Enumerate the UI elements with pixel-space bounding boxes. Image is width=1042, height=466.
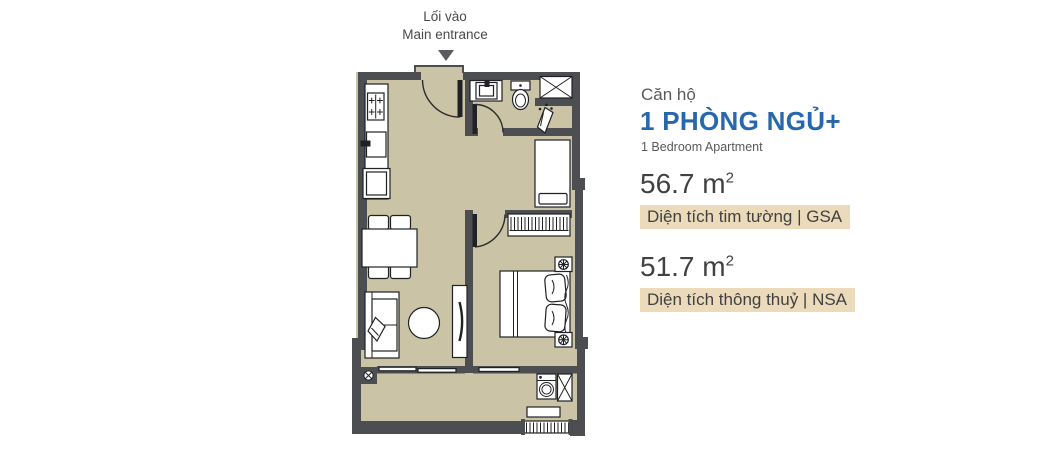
page: Lối vào Main entrance bbox=[0, 0, 1042, 466]
toilet-icon bbox=[511, 81, 530, 110]
refrigerator-icon bbox=[363, 169, 390, 199]
kitchen bbox=[361, 84, 391, 199]
unit-type-subtitle: 1 Bedroom Apartment bbox=[641, 140, 960, 154]
unit-type-label: Căn hộ bbox=[641, 85, 960, 105]
nsa-area-value: 51.7 m2 bbox=[640, 251, 960, 283]
sofa-icon bbox=[365, 292, 399, 358]
gsa-area-value: 56.7 m2 bbox=[640, 168, 960, 200]
bedroom bbox=[500, 214, 572, 347]
entrance-alcove bbox=[415, 66, 463, 73]
balcony-shelf bbox=[527, 407, 560, 417]
nsa-area-label: Diện tích thông thuỷ | NSA bbox=[640, 288, 855, 312]
balcony-railing bbox=[521, 419, 573, 435]
dining-table bbox=[362, 229, 417, 267]
coffee-table-icon bbox=[409, 308, 440, 339]
gsa-area-label: Diện tích tim tường | GSA bbox=[640, 205, 850, 229]
bathroom-sink-icon bbox=[470, 81, 502, 102]
unit-type-title: 1 PHÒNG NGỦ+ bbox=[640, 106, 960, 137]
technical-shaft-icon bbox=[558, 374, 573, 401]
double-bed-icon bbox=[500, 271, 570, 337]
nightstand-icon bbox=[555, 333, 572, 348]
single-bed-icon bbox=[535, 140, 570, 207]
cooktop-icon bbox=[368, 93, 385, 120]
wardrobe-icon bbox=[508, 214, 570, 236]
nightstand-icon bbox=[555, 257, 572, 272]
dining-chair bbox=[391, 216, 411, 230]
entrance-arrow-icon bbox=[438, 50, 454, 61]
dining-chair bbox=[369, 216, 389, 230]
info-panel: Căn hộ 1 PHÒNG NGỦ+ 1 Bedroom Apartment … bbox=[640, 85, 960, 334]
tv-console bbox=[453, 286, 468, 358]
ventilation-shaft-icon bbox=[540, 77, 572, 99]
column-marker-icon bbox=[364, 371, 373, 380]
washing-machine-icon bbox=[537, 374, 556, 399]
